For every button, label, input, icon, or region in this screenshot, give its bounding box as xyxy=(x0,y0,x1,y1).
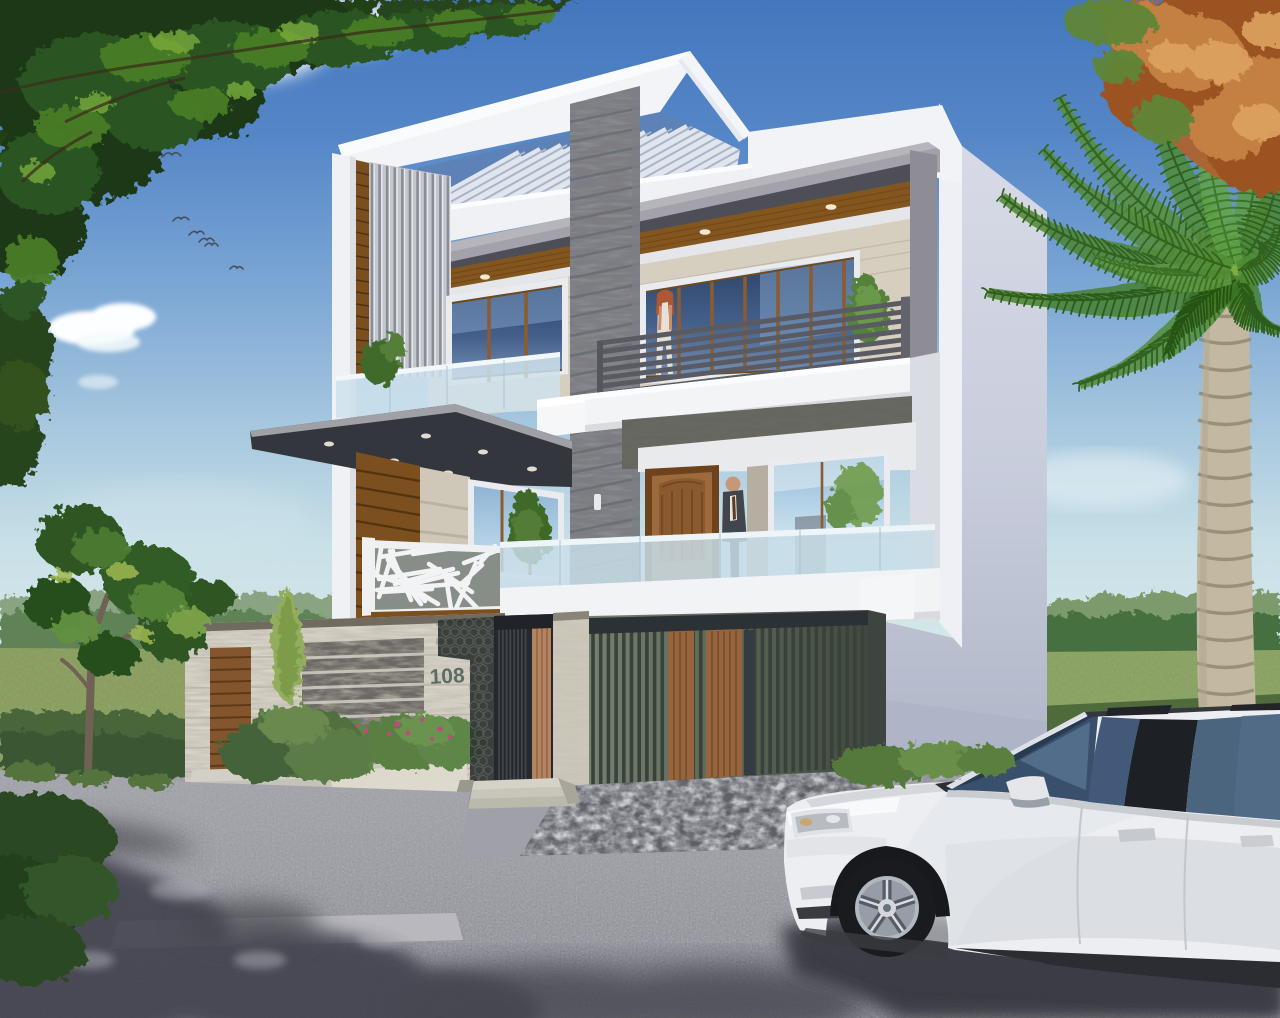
svg-text:108: 108 xyxy=(429,664,466,689)
